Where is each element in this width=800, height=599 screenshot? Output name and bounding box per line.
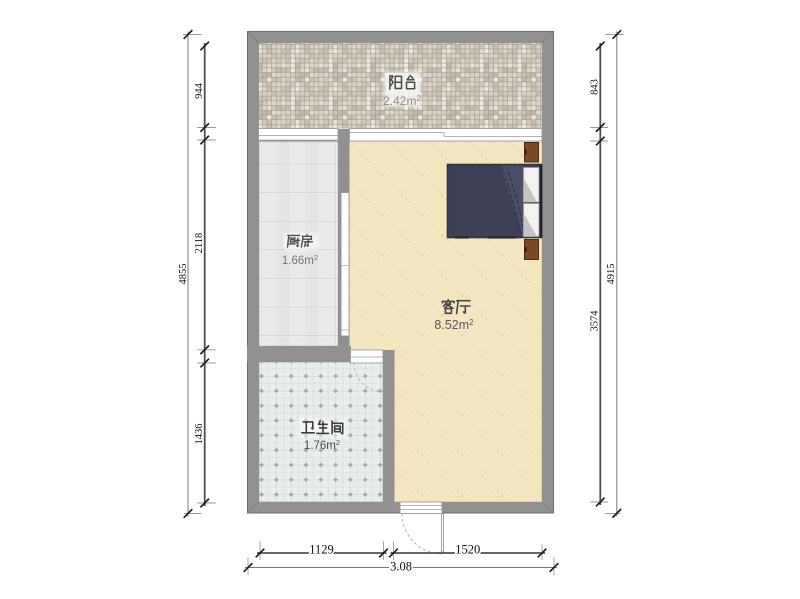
svg-text:3.08: 3.08 <box>390 560 412 574</box>
svg-text:1.76m2: 1.76m2 <box>304 438 340 452</box>
svg-text:4915: 4915 <box>606 264 617 285</box>
svg-text:1.66m2: 1.66m2 <box>282 253 318 267</box>
svg-text:1129: 1129 <box>309 543 334 557</box>
svg-text:2118: 2118 <box>194 233 205 254</box>
svg-text:8.52m2: 8.52m2 <box>434 318 474 332</box>
svg-text:1436: 1436 <box>194 424 205 445</box>
svg-text:4855: 4855 <box>178 264 189 285</box>
svg-text:2.42m2: 2.42m2 <box>383 94 421 108</box>
svg-text:843: 843 <box>589 79 600 95</box>
svg-text:944: 944 <box>194 82 205 99</box>
svg-text:1520: 1520 <box>455 543 480 557</box>
svg-text:3574: 3574 <box>589 310 600 332</box>
